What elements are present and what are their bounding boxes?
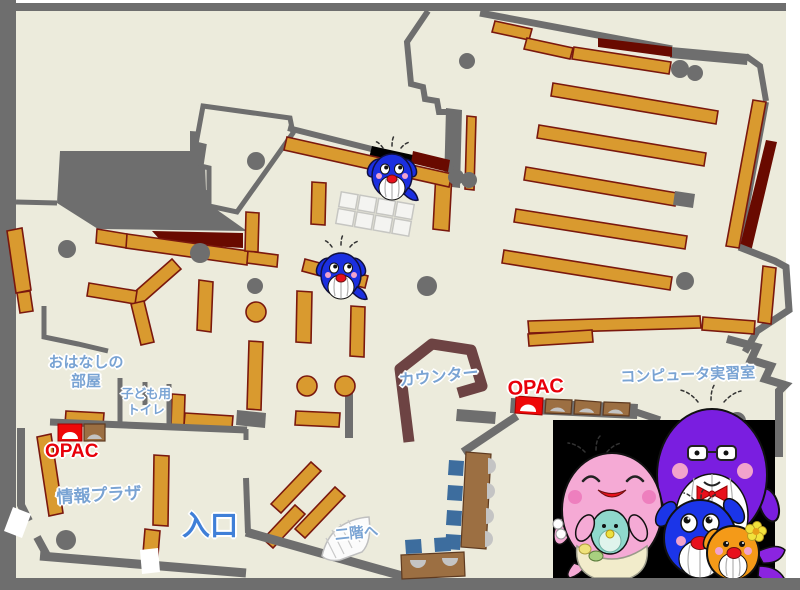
opac-terminal-brown: [574, 400, 601, 415]
chair: [434, 537, 451, 552]
opac-terminal-brown: [545, 399, 572, 414]
study-desk: [401, 552, 465, 579]
frame-top: [16, 3, 786, 11]
bookshelf: [295, 411, 340, 427]
frame-left: [0, 0, 16, 590]
opac-terminal-brown: [603, 402, 630, 416]
chair: [446, 510, 462, 526]
wall-block: [673, 191, 695, 208]
bookshelf: [245, 212, 259, 252]
bookshelf: [17, 291, 33, 313]
wall-segment: [16, 202, 57, 203]
label-kids-toilet: 子ども用 トイレ: [108, 387, 184, 418]
label-opac-left: OPAC: [45, 440, 98, 464]
library-floor-map: おはなしの 部屋 子ども用 トイレ OPAC 情報プラザ 入口 カウンター OP…: [0, 0, 800, 590]
chair: [447, 485, 463, 501]
label-opac-right: OPAC: [507, 374, 565, 402]
chair: [405, 539, 422, 554]
bookshelf: [296, 291, 312, 343]
chair: [448, 460, 464, 476]
label-storytelling-room: おはなしの 部屋: [40, 354, 132, 392]
opac-station-left: [58, 424, 105, 441]
bookshelf: [247, 341, 263, 410]
label-entrance: 入口: [182, 508, 238, 543]
doorway: [140, 548, 160, 574]
bookshelf: [311, 182, 326, 225]
bookshelf: [350, 306, 365, 357]
label-info-plaza: 情報プラザ: [56, 483, 142, 509]
bookshelf: [153, 455, 169, 526]
bookshelf: [197, 280, 213, 332]
